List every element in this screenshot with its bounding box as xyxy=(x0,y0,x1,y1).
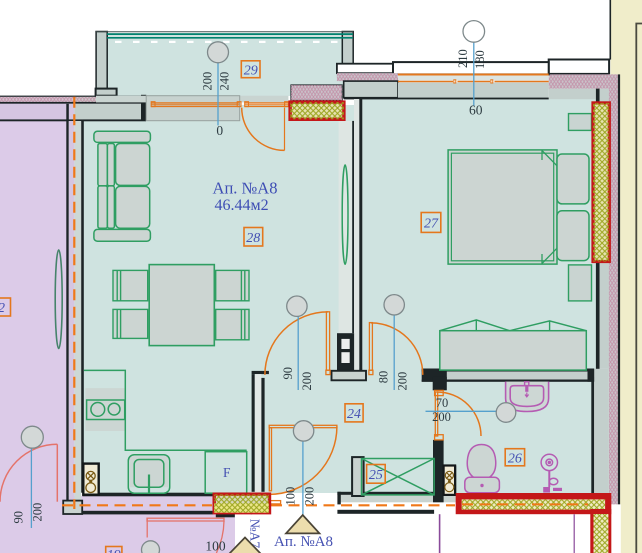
svg-text:27: 27 xyxy=(424,217,439,232)
svg-text:200: 200 xyxy=(300,372,314,391)
svg-text:29: 29 xyxy=(244,63,258,78)
svg-text:Ап. №А8: Ап. №А8 xyxy=(274,534,333,550)
svg-text:46.44м2: 46.44м2 xyxy=(214,197,268,214)
svg-text:90: 90 xyxy=(12,511,26,524)
svg-text:200: 200 xyxy=(31,503,45,522)
svg-text:200: 200 xyxy=(201,72,215,91)
svg-text:24: 24 xyxy=(347,407,361,422)
svg-text:180: 180 xyxy=(473,50,487,69)
svg-text:60: 60 xyxy=(469,103,483,118)
svg-text:80: 80 xyxy=(377,371,391,384)
svg-text:240: 240 xyxy=(217,72,231,91)
svg-text:200: 200 xyxy=(396,372,410,391)
svg-text:2: 2 xyxy=(0,301,5,316)
svg-text:26: 26 xyxy=(508,451,522,466)
svg-text:200: 200 xyxy=(432,410,451,424)
svg-text:Ап. №А8: Ап. №А8 xyxy=(213,179,278,198)
svg-text:28: 28 xyxy=(246,231,260,246)
svg-text:100: 100 xyxy=(284,487,298,506)
svg-text:200: 200 xyxy=(303,487,317,506)
svg-text:100: 100 xyxy=(205,539,226,553)
svg-text:19: 19 xyxy=(107,548,121,553)
svg-text:70: 70 xyxy=(436,396,449,410)
svg-text:F: F xyxy=(223,465,231,480)
svg-text:0: 0 xyxy=(216,123,223,138)
svg-text:210: 210 xyxy=(456,49,470,68)
svg-text:90: 90 xyxy=(281,367,295,380)
svg-text:25: 25 xyxy=(369,468,383,483)
